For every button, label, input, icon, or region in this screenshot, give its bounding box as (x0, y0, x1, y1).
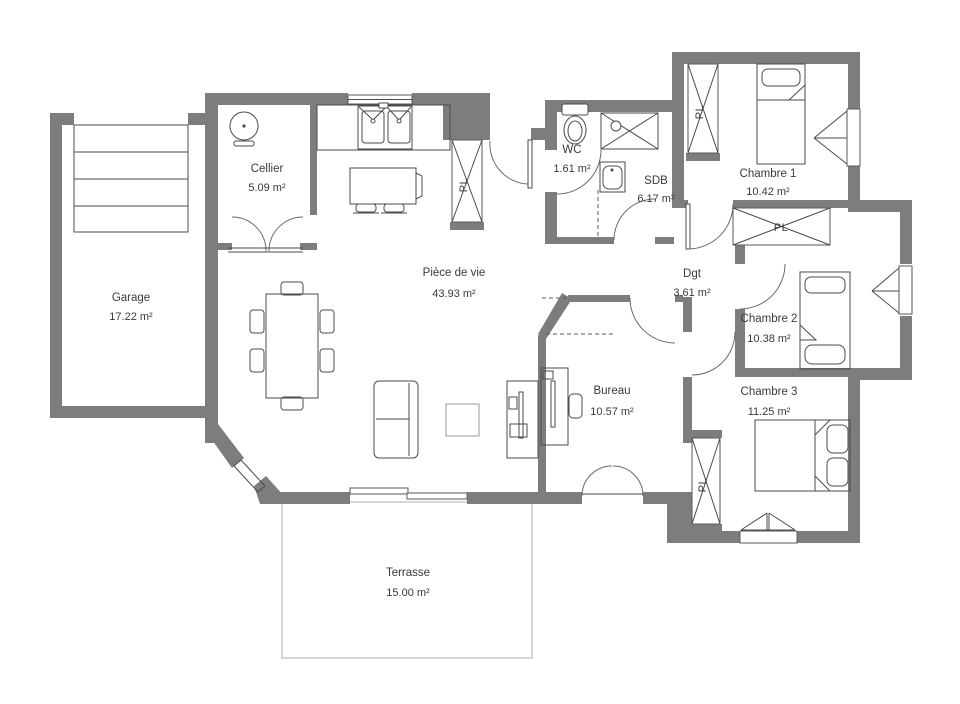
shower (601, 113, 658, 149)
piece-de-vie-area: 43.93 m² (432, 288, 476, 300)
terrasse-area: 15.00 m² (386, 587, 430, 599)
bureau-french-doors (582, 466, 643, 496)
dgt-label: Dgt (683, 268, 702, 280)
bureau-desk (541, 368, 582, 445)
chambre2-closet-label: PL (774, 222, 788, 234)
sdb-door (614, 199, 655, 240)
sdb-label: SDB (644, 175, 668, 187)
sofa (374, 381, 418, 458)
living-sliding-door (350, 488, 467, 499)
kitchen-counter (317, 103, 450, 150)
bureau-area: 10.57 m² (590, 406, 634, 418)
terrace-outline (282, 502, 532, 658)
chambre3-closet-label: PL (697, 478, 709, 492)
bureau-label: Bureau (593, 385, 630, 397)
living-desk (507, 381, 538, 458)
chambre1-closet-label: PL (694, 105, 706, 119)
floor-plan: Garage 17.22 m² Cellier 5.09 m² Pièce de… (0, 0, 960, 704)
water-heater-icon (230, 112, 258, 146)
piece-de-vie-label: Pièce de vie (423, 267, 486, 279)
entry-door (490, 140, 532, 188)
chambre2-bed (800, 272, 850, 369)
wc-toilet (562, 104, 588, 144)
sdb-area: 6.17 m² (637, 193, 675, 205)
chambre3-label: Chambre 3 (741, 386, 798, 398)
chambre3-area: 11.25 m² (748, 406, 791, 418)
coffee-table (446, 404, 479, 436)
dining-table (250, 282, 334, 410)
sdb-sink (600, 162, 625, 192)
chambre2-window (872, 266, 912, 314)
chambre1-label: Chambre 1 (740, 168, 797, 180)
bureau-door (630, 298, 675, 343)
terrasse-label: Terrasse (386, 567, 430, 579)
entry-closet-label: PL (458, 178, 470, 192)
chambre3-door (692, 332, 735, 375)
chambre1-window (814, 109, 860, 166)
chambre2-area: 10.38 m² (747, 333, 791, 345)
dgt-area: 3.61 m² (673, 287, 711, 299)
kitchen-island (350, 168, 422, 213)
chambre2-door (740, 264, 785, 309)
chambre1-area: 10.42 m² (746, 186, 790, 198)
cellier-double-door (228, 217, 303, 252)
chambre3-window (740, 513, 797, 543)
garage-label: Garage (112, 292, 150, 304)
chambre3-bed (755, 420, 850, 491)
floor-plan-drawing: Garage 17.22 m² Cellier 5.09 m² Pièce de… (0, 0, 960, 704)
wc-label: WC (562, 144, 581, 156)
cellier-label: Cellier (251, 163, 284, 175)
chambre1-bed (757, 64, 805, 164)
cellier-area: 5.09 m² (248, 182, 286, 194)
chambre2-label: Chambre 2 (741, 313, 798, 325)
garage-area: 17.22 m² (109, 311, 153, 323)
garage-door (74, 125, 188, 232)
chambre1-door (686, 204, 733, 249)
walls (50, 52, 912, 543)
wc-area: 1.61 m² (553, 163, 591, 175)
